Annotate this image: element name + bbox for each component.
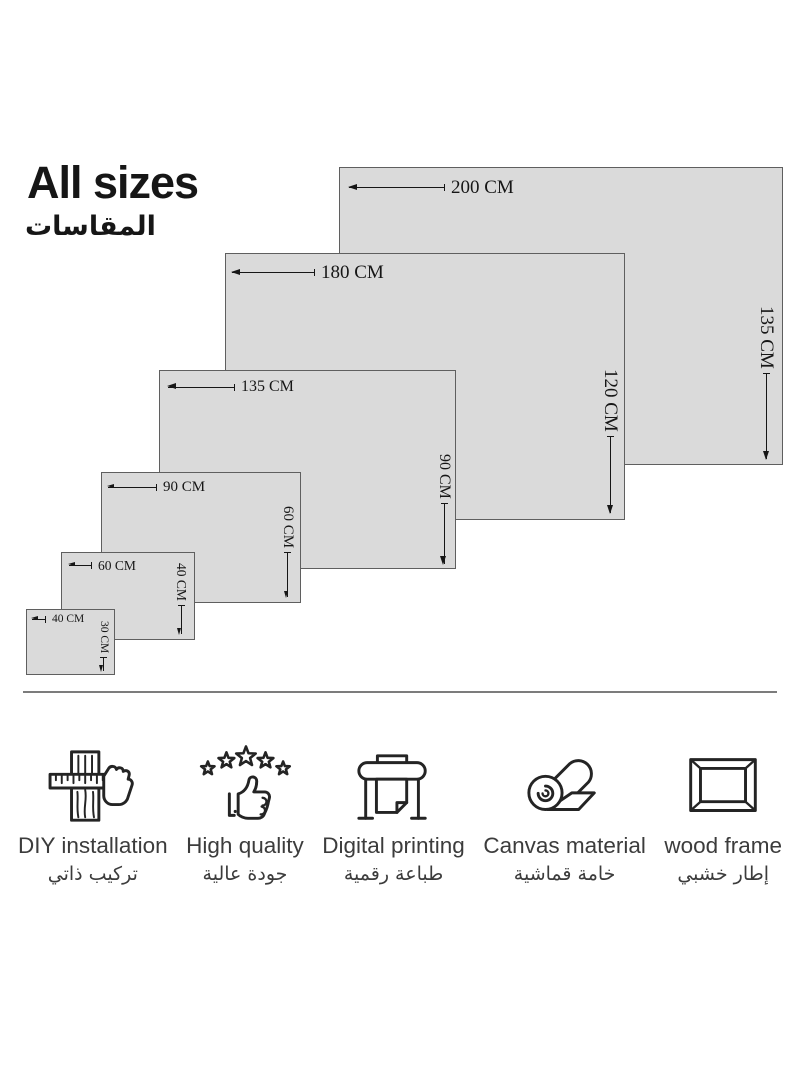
height-dimension: 60 CM (280, 506, 295, 597)
feature-label-en: Digital printing (322, 833, 465, 859)
arrow-left-icon (232, 272, 314, 273)
width-label: 200 CM (451, 178, 514, 197)
size-chart-infographic: All sizes المقاسات 200 CM 135 CM 180 CM … (0, 0, 800, 1092)
arrow-down-icon (287, 553, 288, 597)
feature-label-ar: طباعة رقمية (344, 863, 443, 885)
width-label: 135 CM (241, 379, 294, 395)
page-title: All sizes (27, 160, 198, 205)
features-row: DIY installation تركيب ذاتي (18, 746, 782, 885)
height-label: 135 CM (757, 306, 776, 369)
feature-high-quality: High quality جودة عالية (186, 746, 304, 885)
height-label: 30 CM (98, 621, 110, 653)
page-title-arabic: المقاسات (25, 211, 156, 242)
stars-thumbs-up-icon (194, 746, 296, 830)
wood-frame-icon (676, 746, 770, 830)
arrow-down-icon (103, 658, 104, 671)
width-dimension: 90 CM (108, 480, 205, 495)
feature-canvas-material: Canvas material خامة قماشية (483, 746, 646, 885)
height-dimension: 40 CM (175, 563, 189, 634)
height-dimension: 30 CM (98, 621, 110, 671)
feature-diy-installation: DIY installation تركيب ذاتي (18, 746, 168, 885)
feature-label-en: DIY installation (18, 833, 168, 859)
height-label: 60 CM (280, 506, 295, 548)
arrow-left-icon (349, 187, 444, 188)
height-label: 90 CM (436, 454, 452, 499)
feature-digital-printing: Digital printing طباعة رقمية (322, 746, 465, 885)
arrow-left-icon (108, 487, 156, 488)
arrow-left-icon (32, 619, 45, 620)
feature-wood-frame: wood frame إطار خشبي (664, 746, 782, 885)
size-panel-40x30: 40 CM 30 CM (26, 609, 115, 675)
height-dimension: 135 CM (757, 306, 776, 459)
height-dimension: 90 CM (436, 454, 452, 564)
width-label: 40 CM (52, 614, 84, 626)
feature-label-en: Canvas material (483, 833, 646, 859)
arrow-down-icon (766, 374, 767, 459)
large-format-printer-icon (350, 746, 438, 830)
width-dimension: 180 CM (232, 263, 384, 282)
height-dimension: 120 CM (601, 369, 620, 513)
arrow-down-icon (610, 437, 611, 513)
height-label: 40 CM (175, 563, 189, 601)
feature-label-ar: خامة قماشية (514, 863, 616, 885)
width-dimension: 135 CM (168, 379, 294, 395)
feature-label-ar: تركيب ذاتي (48, 863, 138, 885)
canvas-roll-icon (518, 746, 612, 830)
divider (23, 691, 777, 693)
arrow-down-icon (444, 504, 445, 564)
arrow-left-icon (168, 387, 234, 388)
width-dimension: 60 CM (69, 559, 136, 573)
measuring-tape-icon (41, 746, 145, 830)
height-label: 120 CM (601, 369, 620, 432)
feature-label-ar: جودة عالية (203, 863, 288, 885)
feature-label-ar: إطار خشبي (677, 863, 769, 885)
arrow-left-icon (69, 565, 91, 566)
width-label: 60 CM (98, 559, 136, 573)
feature-label-en: High quality (186, 833, 304, 859)
width-dimension: 40 CM (32, 614, 84, 626)
width-label: 180 CM (321, 263, 384, 282)
width-label: 90 CM (163, 480, 205, 495)
arrow-down-icon (181, 606, 182, 634)
width-dimension: 200 CM (349, 178, 514, 197)
feature-label-en: wood frame (664, 833, 782, 859)
